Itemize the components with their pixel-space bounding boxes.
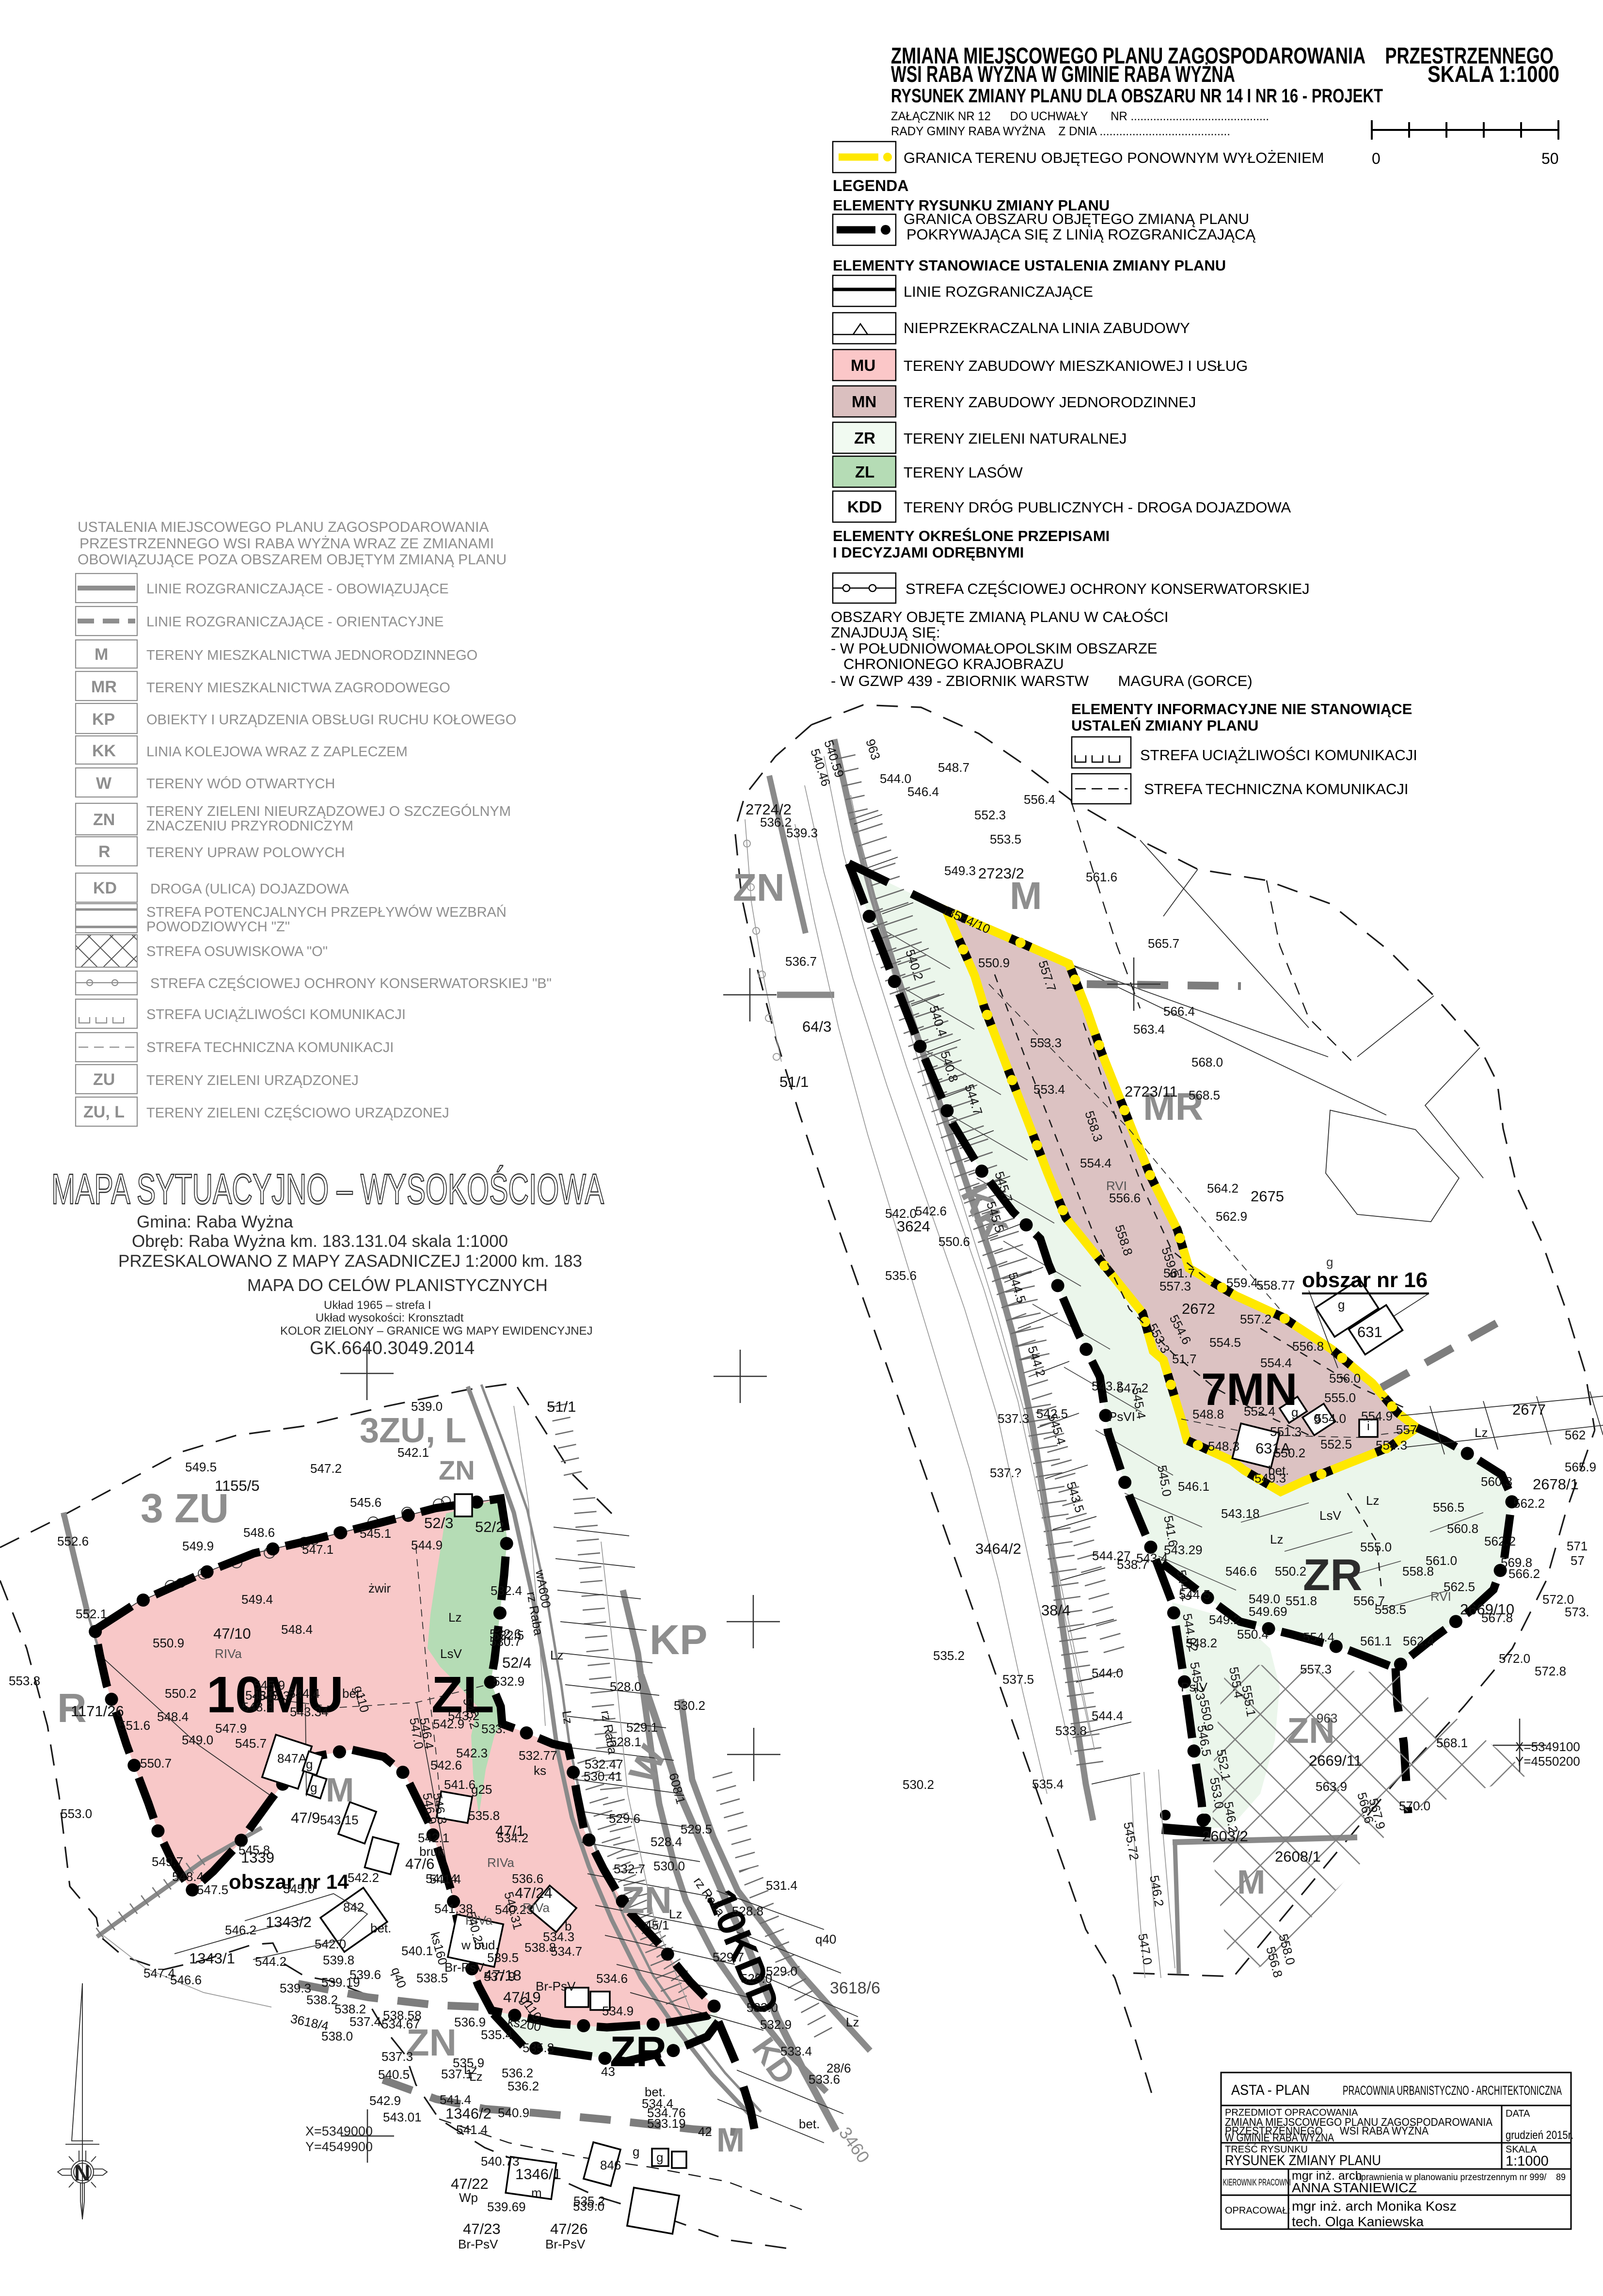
svg-text:563.4: 563.4 <box>1133 1022 1165 1036</box>
svg-text:TERENY ZIELENI NIEURZĄDZOWEJ O: TERENY ZIELENI NIEURZĄDZOWEJ O SZCZEGÓLN… <box>146 803 511 819</box>
svg-text:ZN: ZN <box>439 1455 475 1485</box>
svg-text:ZU: ZU <box>93 1070 115 1089</box>
svg-text:533.: 533. <box>481 1722 506 1736</box>
svg-text:ks: ks <box>534 1763 546 1778</box>
svg-text:KP: KP <box>92 710 115 729</box>
svg-text:51/1: 51/1 <box>547 1398 576 1415</box>
svg-text:568.0: 568.0 <box>1191 1055 1223 1069</box>
svg-text:LsV: LsV <box>1319 1508 1341 1523</box>
svg-text:RYSUNEK ZMIANY PLANU: RYSUNEK ZMIANY PLANU <box>1225 2152 1381 2168</box>
svg-text:i: i <box>1367 1419 1370 1433</box>
svg-text:542.9: 542.9 <box>433 1717 464 1731</box>
svg-text:KDD: KDD <box>847 498 882 516</box>
svg-text:- W GZWP 439 - ZBIORNIK WARSTW: - W GZWP 439 - ZBIORNIK WARSTW MAGURA (G… <box>831 672 1253 689</box>
svg-text:846: 846 <box>600 2158 621 2172</box>
svg-text:64/3: 64/3 <box>802 1018 831 1035</box>
svg-text:g: g <box>656 2150 663 2165</box>
svg-text:547.5: 547.5 <box>197 1882 228 1897</box>
svg-text:Gmina: Raba Wyżna: Gmina: Raba Wyżna <box>137 1212 293 1231</box>
svg-text:548.3: 548.3 <box>1208 1439 1239 1453</box>
svg-text:R: R <box>98 843 111 861</box>
svg-text:534.9: 534.9 <box>602 2004 634 2018</box>
svg-text:LEGENDA: LEGENDA <box>833 177 908 194</box>
svg-text:553.0: 553.0 <box>61 1806 92 1821</box>
svg-text:550.6: 550.6 <box>938 1234 970 1249</box>
svg-text:542.2: 542.2 <box>348 1870 379 1885</box>
svg-text:631: 631 <box>1357 1323 1382 1340</box>
svg-text:RADY GMINY RABA WYŻNA Z DNI: RADY GMINY RABA WYŻNA Z DNIA ...........… <box>891 124 1230 138</box>
svg-text:550.7: 550.7 <box>140 1756 172 1770</box>
svg-text:562.2: 562.2 <box>1484 1534 1516 1548</box>
svg-text:547.1: 547.1 <box>302 1542 333 1557</box>
svg-text:545.1: 545.1 <box>360 1526 391 1541</box>
svg-text:540.5: 540.5 <box>378 2067 410 2082</box>
svg-text:539.3: 539.3 <box>786 826 818 840</box>
svg-text:552.6: 552.6 <box>57 1534 89 1548</box>
svg-text:565.9: 565.9 <box>1565 1460 1596 1474</box>
svg-text:572.0: 572.0 <box>1499 1651 1530 1666</box>
svg-text:556.5: 556.5 <box>1433 1500 1464 1515</box>
svg-text:544.4: 544.4 <box>288 1686 320 1701</box>
svg-text:560.8: 560.8 <box>1447 1521 1478 1536</box>
svg-text:grudzień 2015r.: grudzień 2015r. <box>1506 2129 1573 2142</box>
svg-text:ELEMENTY INFORMACYJNE NIE STAN: ELEMENTY INFORMACYJNE NIE STANOWIĄCE <box>1071 701 1412 717</box>
svg-text:546.4: 546.4 <box>907 784 939 799</box>
svg-text:PRZESTRZENNEGO WSI RABA WYŻNA: PRZESTRZENNEGO WSI RABA WYŻNA WRAZ ZE ZM… <box>79 536 494 552</box>
svg-text:LINIE ROZGRANICZAJĄCE - ORIENT: LINIE ROZGRANICZAJĄCE - ORIENTACYJNE <box>146 614 444 630</box>
svg-text:b: b <box>565 1919 571 1933</box>
svg-text:KP: KP <box>650 1617 707 1663</box>
svg-text:STREFA POTENCJALNYCH PRZEPŁYWÓ: STREFA POTENCJALNYCH PRZEPŁYWÓW WEZBRAŃ <box>146 904 507 920</box>
svg-text:TERENY ZIELENI CZĘŚCIOWO URZĄD: TERENY ZIELENI CZĘŚCIOWO URZĄDZONEJ <box>146 1104 449 1121</box>
svg-text:TERENY MIESZKALNICTWA JEDNOROD: TERENY MIESZKALNICTWA JEDNORODZINNEGO <box>146 648 477 663</box>
svg-text:549.7: 549.7 <box>152 1854 183 1869</box>
svg-text:542.1: 542.1 <box>418 1831 449 1845</box>
svg-text:uprawnienia w planowaniu przes: uprawnienia w planowaniu przestrzennym n… <box>1356 2172 1566 2183</box>
svg-text:529.7: 529.7 <box>713 1950 744 1964</box>
svg-text:47/22: 47/22 <box>451 2175 489 2192</box>
svg-text:552.4: 552.4 <box>1244 1404 1275 1419</box>
svg-text:530.2: 530.2 <box>903 1777 934 1792</box>
svg-text:535.6: 535.6 <box>885 1268 917 1283</box>
svg-text:554.4: 554.4 <box>1303 1630 1334 1644</box>
svg-text:g: g <box>1291 1405 1298 1419</box>
svg-text:żwir: żwir <box>368 1581 391 1595</box>
svg-text:MU: MU <box>851 356 875 374</box>
svg-text:539.19: 539.19 <box>321 1975 360 1990</box>
svg-text:536.6: 536.6 <box>512 1871 543 1886</box>
svg-text:566.2: 566.2 <box>1508 1566 1540 1581</box>
svg-text:28/6: 28/6 <box>826 2061 851 2075</box>
svg-text:549.2: 549.2 <box>1209 1612 1240 1627</box>
svg-text:ZR: ZR <box>854 429 875 447</box>
svg-text:551.8: 551.8 <box>1286 1594 1317 1608</box>
svg-text:POKRYWAJĄCA SIĘ Z LINIĄ ROZGRA: POKRYWAJĄCA SIĘ Z LINIĄ ROZGRANICZAJĄCĄ <box>906 226 1255 243</box>
svg-text:550.2: 550.2 <box>1275 1564 1306 1578</box>
svg-text:571: 571 <box>1567 1539 1587 1553</box>
svg-text:STREFA CZĘŚCIOWEJ OCHRONY KONS: STREFA CZĘŚCIOWEJ OCHRONY KONSERWATORSKI… <box>150 975 552 991</box>
svg-text:543.15: 543.15 <box>320 1813 359 1827</box>
svg-text:bet.: bet. <box>799 2117 820 2131</box>
svg-text:543.01: 543.01 <box>383 2110 422 2124</box>
svg-text:528.4: 528.4 <box>651 1834 682 1849</box>
svg-text:- W POŁUDNIOWOMAŁOPOLSKIM OBSZ: - W POŁUDNIOWOMAŁOPOLSKIM OBSZARZE <box>831 640 1157 657</box>
svg-text:SKALA 1:1000: SKALA 1:1000 <box>1428 61 1559 87</box>
svg-text:PsVI: PsVI <box>1109 1409 1135 1424</box>
svg-text:OBSZARY OBJĘTE ZMIANĄ PLANU W: OBSZARY OBJĘTE ZMIANĄ PLANU W CAŁOŚCI <box>831 608 1169 625</box>
svg-text:TERENY MIESZKALNICTWA ZAGRODOW: TERENY MIESZKALNICTWA ZAGRODOWEGO <box>146 680 450 696</box>
svg-text:OBOWIĄZUJĄCE POZA OBSZAREM OBJ: OBOWIĄZUJĄCE POZA OBSZAREM OBJĘTYM ZMIAN… <box>78 552 507 568</box>
svg-text:532.4: 532.4 <box>491 1583 522 1598</box>
svg-text:Układ 1965 – strefa I: Układ 1965 – strefa I <box>324 1299 431 1312</box>
svg-text:549.0: 549.0 <box>182 1733 213 1747</box>
svg-text:549.4: 549.4 <box>241 1592 273 1607</box>
svg-text:556.4: 556.4 <box>1024 792 1055 807</box>
svg-text:Y=4550200: Y=4550200 <box>1515 1754 1580 1769</box>
svg-text:542.0: 542.0 <box>315 1937 346 1951</box>
svg-text:530.0: 530.0 <box>653 1859 685 1873</box>
svg-text:g: g <box>306 1757 313 1771</box>
svg-text:2677: 2677 <box>1512 1401 1546 1418</box>
svg-text:TERENY DRÓG PUBLICZNYCH - DROG: TERENY DRÓG PUBLICZNYCH - DROGA DOJAZDOW… <box>904 499 1291 516</box>
svg-text:52/2: 52/2 <box>475 1518 504 1535</box>
svg-text:550.9: 550.9 <box>153 1636 184 1650</box>
svg-text:RIVa: RIVa <box>215 1646 242 1661</box>
svg-text:LsV: LsV <box>440 1646 462 1661</box>
svg-text:1346/1: 1346/1 <box>515 2166 561 2183</box>
svg-text:TERENY WÓD OTWARTYCH: TERENY WÓD OTWARTYCH <box>146 776 335 792</box>
svg-text:544.2: 544.2 <box>255 1954 286 1969</box>
svg-text:2669/11: 2669/11 <box>1309 1752 1362 1769</box>
svg-text:537.3: 537.3 <box>381 2049 413 2064</box>
svg-text:542.1: 542.1 <box>397 1445 429 1460</box>
svg-text:ZR: ZR <box>610 2027 667 2075</box>
svg-text:STREFA UCIĄŻLIWOŚCI KOMUNIKACJ: STREFA UCIĄŻLIWOŚCI KOMUNIKACJI <box>146 1006 406 1022</box>
svg-text:52/4: 52/4 <box>502 1654 531 1671</box>
svg-text:DROGA (ULICA) DOJAZDOWA: DROGA (ULICA) DOJAZDOWA <box>150 881 349 897</box>
svg-text:552.3: 552.3 <box>974 808 1006 822</box>
svg-text:50: 50 <box>1541 150 1559 167</box>
svg-text:548.8: 548.8 <box>1192 1407 1224 1421</box>
svg-text:RYSUNEK ZMIANY PLANU DLA OBSZA: RYSUNEK ZMIANY PLANU DLA OBSZARU NR 14 I… <box>891 85 1383 107</box>
svg-text:540.1: 540.1 <box>401 1944 433 1958</box>
svg-text:N: N <box>74 2160 90 2185</box>
svg-text:531.4: 531.4 <box>766 1878 797 1893</box>
svg-text:537.?: 537.? <box>990 1466 1021 1480</box>
svg-text:mgr inż. arch Monika Kosz: mgr inż. arch Monika Kosz <box>1292 2199 1457 2214</box>
svg-text:535.8: 535.8 <box>468 1808 500 1823</box>
svg-text:533.8: 533.8 <box>1055 1723 1087 1738</box>
svg-text:ZNAJDUJĄ SIĘ:: ZNAJDUJĄ SIĘ: <box>831 624 940 641</box>
svg-text:42: 42 <box>698 2124 712 2139</box>
svg-text:545.0: 545.0 <box>283 1881 315 1896</box>
svg-text:541.4: 541.4 <box>440 2092 471 2107</box>
svg-text:542.9: 542.9 <box>369 2093 401 2108</box>
svg-text:535.2: 535.2 <box>573 2194 605 2208</box>
svg-text:LINIE ROZGRANICZAJĄCE - OBOWIĄ: LINIE ROZGRANICZAJĄCE - OBOWIĄZUJĄCE <box>146 581 449 597</box>
svg-text:528.0: 528.0 <box>610 1679 641 1694</box>
svg-text:bet.: bet. <box>1268 1463 1289 1478</box>
svg-text:RVI: RVI <box>1430 1589 1451 1604</box>
svg-text:Lz: Lz <box>1270 1532 1283 1547</box>
svg-text:530.2: 530.2 <box>674 1698 705 1713</box>
svg-text:547.9: 547.9 <box>215 1721 247 1736</box>
svg-text:529.1: 529.1 <box>626 1720 658 1735</box>
svg-text:963: 963 <box>1317 1711 1337 1725</box>
svg-text:Y=4549900: Y=4549900 <box>305 2139 373 2154</box>
svg-text:558.5: 558.5 <box>1375 1602 1406 1617</box>
svg-text:529.5: 529.5 <box>681 1822 712 1836</box>
svg-text:Lz: Lz <box>448 1610 461 1625</box>
svg-text:562.4: 562.4 <box>1403 1634 1434 1648</box>
svg-text:554.4: 554.4 <box>1080 1156 1111 1170</box>
svg-text:1:1000: 1:1000 <box>1506 2153 1549 2169</box>
svg-text:562.9: 562.9 <box>1216 1209 1247 1224</box>
svg-text:m: m <box>531 2185 542 2200</box>
svg-text:538.2: 538.2 <box>306 1993 338 2007</box>
svg-text:842: 842 <box>343 1900 364 1914</box>
svg-text:538.5: 538.5 <box>416 1971 448 1985</box>
svg-text:Br-PsV: Br-PsV <box>536 1979 576 1993</box>
svg-text:bruk: bruk <box>419 1844 444 1859</box>
svg-text:Lz: Lz <box>1475 1425 1488 1440</box>
svg-text:WSI RABA WYŻNA W GMINIE RABA W: WSI RABA WYŻNA W GMINIE RABA WYŻNA <box>891 61 1235 87</box>
svg-text:557.3: 557.3 <box>1300 1662 1332 1676</box>
svg-text:2678/1: 2678/1 <box>1533 1476 1579 1493</box>
svg-text:Lz: Lz <box>464 2062 477 2077</box>
svg-text:KD: KD <box>93 879 117 897</box>
svg-text:528.8: 528.8 <box>732 1904 763 1918</box>
svg-text:534.67: 534.67 <box>381 2017 420 2031</box>
svg-text:M: M <box>95 645 108 664</box>
svg-text:553.8: 553.8 <box>9 1674 40 1688</box>
svg-text:MR: MR <box>91 678 117 696</box>
svg-text:549.3: 549.3 <box>944 863 976 878</box>
svg-text:549.5: 549.5 <box>185 1460 217 1474</box>
svg-text:553.5: 553.5 <box>990 832 1021 846</box>
svg-text:2723/11: 2723/11 <box>1125 1083 1178 1100</box>
svg-text:STREFA TECHNICZNA KOMUNIKACJI: STREFA TECHNICZNA KOMUNIKACJI <box>1144 781 1408 797</box>
svg-text:548.7: 548.7 <box>938 760 969 775</box>
svg-text:1346/2: 1346/2 <box>445 2105 492 2122</box>
svg-text:555.0: 555.0 <box>1360 1540 1392 1554</box>
svg-text:ZR: ZR <box>1303 1550 1363 1600</box>
svg-text:ELEMENTY STANOWIACE USTALENIA: ELEMENTY STANOWIACE USTALENIA ZMIANY PLA… <box>833 257 1226 274</box>
svg-text:555.0: 555.0 <box>1324 1390 1356 1405</box>
svg-text:538.8: 538.8 <box>524 1940 556 1955</box>
svg-text:532.5: 532.5 <box>492 1628 524 1642</box>
svg-text:1343/2: 1343/2 <box>266 1913 312 1930</box>
svg-text:549.69: 549.69 <box>1249 1604 1287 1619</box>
svg-text:2603/2: 2603/2 <box>1202 1828 1248 1845</box>
svg-text:568.5: 568.5 <box>1189 1088 1220 1102</box>
svg-text:47/24: 47/24 <box>515 1884 553 1901</box>
svg-text:532.9: 532.9 <box>760 2017 792 2032</box>
svg-text:544.27: 544.27 <box>1092 1548 1131 1563</box>
svg-text:545.7: 545.7 <box>235 1736 267 1751</box>
svg-text:530.41: 530.41 <box>584 1769 622 1784</box>
svg-text:543.34: 543.34 <box>290 1705 329 1719</box>
svg-text:ZL: ZL <box>855 463 874 481</box>
svg-text:q40: q40 <box>815 1932 836 1946</box>
svg-text:bet.: bet. <box>645 2085 666 2099</box>
svg-text:M: M <box>716 2121 745 2159</box>
svg-text:548.6: 548.6 <box>243 1525 275 1540</box>
svg-text:533.4: 533.4 <box>780 2044 812 2058</box>
svg-text:g: g <box>310 1780 317 1795</box>
svg-text:obszar nr 16: obszar nr 16 <box>1302 1268 1428 1292</box>
svg-text:542.6: 542.6 <box>915 1204 947 1218</box>
svg-text:47/23: 47/23 <box>463 2220 501 2237</box>
svg-text:535.4: 535.4 <box>1032 1777 1063 1791</box>
svg-text:1155/5: 1155/5 <box>215 1477 260 1494</box>
svg-text:550.2: 550.2 <box>1274 1446 1305 1460</box>
svg-text:1171/26: 1171/26 <box>71 1703 124 1720</box>
svg-text:ASTA - PLAN: ASTA - PLAN <box>1231 2082 1310 2098</box>
svg-text:546.1: 546.1 <box>1178 1479 1209 1494</box>
svg-text:LINIE ROZGRANICZAJĄCE: LINIE ROZGRANICZAJĄCE <box>904 283 1093 300</box>
svg-text:STREFA CZĘŚCIOWEJ OCHRONY KONS: STREFA CZĘŚCIOWEJ OCHRONY KONSERWATORSKI… <box>905 580 1310 597</box>
svg-text:537.9: 537.9 <box>484 1969 515 1984</box>
svg-text:TERENY ZABUDOWY JEDNORODZINNEJ: TERENY ZABUDOWY JEDNORODZINNEJ <box>904 394 1196 411</box>
svg-text:RIVa: RIVa <box>487 1855 514 1870</box>
svg-text:CHRONIONEGO KRAJOBRAZU: CHRONIONEGO KRAJOBRAZU <box>843 655 1064 672</box>
svg-text:Lz: Lz <box>1366 1493 1379 1508</box>
svg-text:539.69: 539.69 <box>487 2200 526 2214</box>
svg-text:541.4: 541.4 <box>426 1871 457 1886</box>
svg-text:544.4: 544.4 <box>1092 1708 1123 1723</box>
svg-text:533.0: 533.0 <box>746 2000 778 2015</box>
svg-text:562: 562 <box>1565 1428 1586 1442</box>
svg-text:TERENY ZIELENI NATURALNEJ: TERENY ZIELENI NATURALNEJ <box>904 430 1127 447</box>
svg-text:542.0: 542.0 <box>885 1206 917 1221</box>
svg-text:564.2: 564.2 <box>1207 1181 1238 1196</box>
svg-text:OPRACOWAŁ:: OPRACOWAŁ: <box>1225 2205 1290 2216</box>
svg-text:43: 43 <box>601 2064 615 2079</box>
svg-text:3ZU, L: 3ZU, L <box>360 1411 466 1450</box>
svg-text:Lz: Lz <box>669 1907 682 1921</box>
svg-text:534.2: 534.2 <box>497 1831 528 1845</box>
svg-text:MAPA DO CELÓW PLANISTYCZNYCH: MAPA DO CELÓW PLANISTYCZNYCH <box>247 1276 548 1295</box>
svg-text:548.4: 548.4 <box>157 1709 189 1724</box>
svg-text:W: W <box>96 774 112 793</box>
svg-text:ELEMENTY OKREŚLONE PRZEPISAMI: ELEMENTY OKREŚLONE PRZEPISAMI <box>833 527 1110 544</box>
svg-text:TERENY ZIELENI URZĄDZONEJ: TERENY ZIELENI URZĄDZONEJ <box>146 1073 359 1088</box>
svg-text:537.4: 537.4 <box>349 2014 381 2029</box>
svg-text:548.4: 548.4 <box>172 1869 204 1884</box>
svg-text:540.73: 540.73 <box>481 2154 520 2168</box>
svg-text:539.0: 539.0 <box>411 1399 443 1414</box>
svg-text:540.9: 540.9 <box>498 2105 529 2120</box>
svg-text:561.6: 561.6 <box>1086 870 1117 884</box>
svg-text:557.3: 557.3 <box>1159 1279 1191 1293</box>
svg-text:47/26: 47/26 <box>550 2220 588 2237</box>
svg-text:38/4: 38/4 <box>1041 1602 1070 1619</box>
svg-text:561.1: 561.1 <box>1360 1634 1392 1648</box>
svg-text:554.5: 554.5 <box>1209 1335 1241 1350</box>
svg-text:563.9: 563.9 <box>1316 1779 1347 1794</box>
svg-text:544.0: 544.0 <box>880 771 911 786</box>
svg-text:544.9: 544.9 <box>411 1538 443 1552</box>
svg-text:553.3: 553.3 <box>1030 1036 1062 1050</box>
svg-text:545.8: 545.8 <box>238 1843 270 1857</box>
svg-text:550.4: 550.4 <box>1237 1627 1269 1642</box>
svg-text:532.7: 532.7 <box>614 1862 645 1876</box>
svg-text:847A: 847A <box>277 1751 307 1766</box>
svg-text:47/10: 47/10 <box>213 1625 251 1642</box>
svg-text:553.4: 553.4 <box>1033 1082 1065 1097</box>
svg-text:565.7: 565.7 <box>1148 936 1179 951</box>
svg-text:KIEROWNIK PRACOWNI: KIEROWNIK PRACOWNI <box>1223 2178 1291 2188</box>
svg-text:535.4: 535.4 <box>481 2027 512 2042</box>
svg-text:557.2: 557.2 <box>1240 1312 1271 1326</box>
svg-text:546.6: 546.6 <box>170 1973 202 1987</box>
svg-text:Obręb: Raba Wyżna km. 183.13: Obręb: Raba Wyżna km. 183.131.04 skala 1… <box>132 1232 508 1251</box>
svg-text:543.18: 543.18 <box>1221 1506 1260 1521</box>
svg-text:POWODZIOWYCH "Z": POWODZIOWYCH "Z" <box>146 919 290 935</box>
svg-text:552.1: 552.1 <box>76 1607 107 1621</box>
svg-text:544.0: 544.0 <box>1092 1666 1123 1680</box>
svg-text:536.2: 536.2 <box>508 2079 539 2093</box>
svg-text:OBIEKTY I URZĄDZENIA OBSŁUGI R: OBIEKTY I URZĄDZENIA OBSŁUGI RUCHU KOŁOW… <box>146 712 516 728</box>
svg-text:536.7: 536.7 <box>785 954 817 969</box>
svg-text:556.8: 556.8 <box>1292 1339 1324 1354</box>
svg-text:GRANICA TERENU OBJĘTEGO PONOWN: GRANICA TERENU OBJĘTEGO PONOWNYM WYŁOŻEN… <box>904 149 1324 166</box>
svg-text:X=5349100: X=5349100 <box>1515 1739 1580 1754</box>
svg-text:535.8: 535.8 <box>523 2041 554 2055</box>
svg-text:W GMINIE RABA WYŻNA: W GMINIE RABA WYŻNA <box>1225 2131 1334 2144</box>
svg-text:549.0: 549.0 <box>1249 1592 1280 1606</box>
svg-text:552.5: 552.5 <box>1320 1437 1352 1451</box>
svg-text:45/1: 45/1 <box>645 1918 669 1932</box>
svg-text:547.2: 547.2 <box>310 1461 342 1476</box>
svg-text:572.8: 572.8 <box>1535 1664 1566 1678</box>
svg-text:533.19: 533.19 <box>647 2116 686 2131</box>
svg-text:548.4: 548.4 <box>281 1622 313 1637</box>
svg-text:ZN: ZN <box>93 811 115 829</box>
svg-text:545.3: 545.3 <box>258 1689 290 1703</box>
svg-text:2723/2: 2723/2 <box>978 865 1024 882</box>
svg-text:g: g <box>1314 1410 1320 1424</box>
svg-text:g: g <box>1326 1255 1333 1269</box>
svg-text:536.2: 536.2 <box>502 2066 533 2080</box>
svg-text:541.4: 541.4 <box>456 2122 488 2137</box>
svg-text:57: 57 <box>1571 1553 1585 1568</box>
svg-text:GK.6640.3049.2014: GK.6640.3049.2014 <box>310 1338 475 1358</box>
svg-text:537.5: 537.5 <box>1002 1672 1034 1687</box>
svg-text:PRZESKALOWANO Z MAPY ZASADNICZ: PRZESKALOWANO Z MAPY ZASADNICZEJ 1:2000 … <box>118 1252 582 1271</box>
svg-text:M: M <box>326 1771 354 1809</box>
svg-text:M: M <box>1237 1863 1265 1901</box>
svg-text:PRACOWNIA URBANISTYCZNO - ARC: PRACOWNIA URBANISTYCZNO - ARCHITEKTONICZ… <box>1343 2083 1562 2098</box>
svg-text:567.8: 567.8 <box>1481 1610 1513 1625</box>
svg-text:Lz: Lz <box>559 1710 576 1725</box>
svg-text:ZN: ZN <box>733 866 785 909</box>
svg-text:STREFA UCIĄŻLIWOŚCI KOMUNIKACJ: STREFA UCIĄŻLIWOŚCI KOMUNIKACJI <box>1140 746 1417 764</box>
svg-text:TERENY UPRAW POLOWYCH: TERENY UPRAW POLOWYCH <box>146 845 345 861</box>
svg-text:559.4: 559.4 <box>1226 1276 1258 1290</box>
svg-text:51.7: 51.7 <box>1172 1352 1197 1366</box>
svg-text:ZAŁĄCZNIK NR 12 DO UCHWA: ZAŁĄCZNIK NR 12 DO UCHWAŁY NR ..........… <box>891 110 1269 123</box>
svg-text:51/1: 51/1 <box>779 1073 809 1090</box>
svg-text:Br-PsV: Br-PsV <box>458 2237 498 2251</box>
svg-text:570.0: 570.0 <box>1399 1799 1430 1813</box>
svg-text:NIEPRZEKRACZALNA LINIA ZABUDOW: NIEPRZEKRACZALNA LINIA ZABUDOWY <box>904 319 1190 336</box>
svg-text:539.8: 539.8 <box>323 1953 354 1967</box>
svg-text:0: 0 <box>1372 150 1381 167</box>
svg-text:566.4: 566.4 <box>1163 1004 1195 1019</box>
svg-text:2608/1: 2608/1 <box>1275 1848 1321 1865</box>
